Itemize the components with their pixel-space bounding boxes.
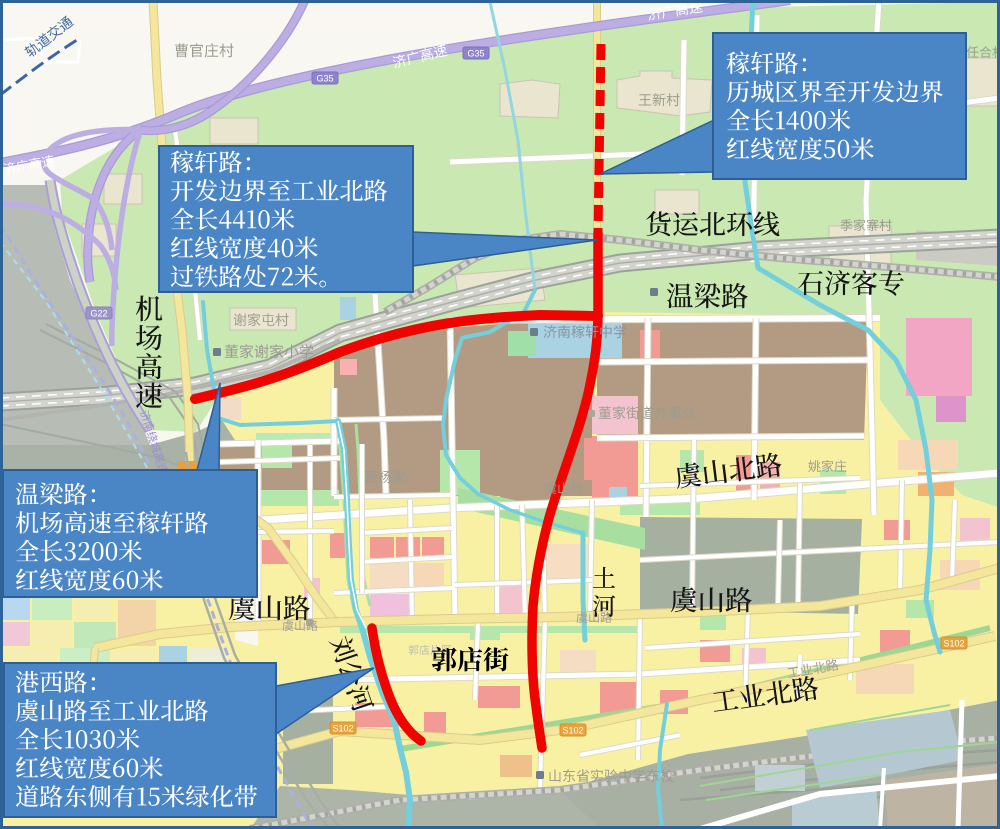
svg-text:S102: S102 [562, 726, 583, 736]
svg-text:S102: S102 [332, 724, 353, 734]
svg-text:S102: S102 [943, 639, 964, 649]
svg-text:G35: G35 [467, 49, 484, 59]
svg-text:G22: G22 [90, 309, 107, 319]
svg-text:G35: G35 [316, 74, 333, 84]
